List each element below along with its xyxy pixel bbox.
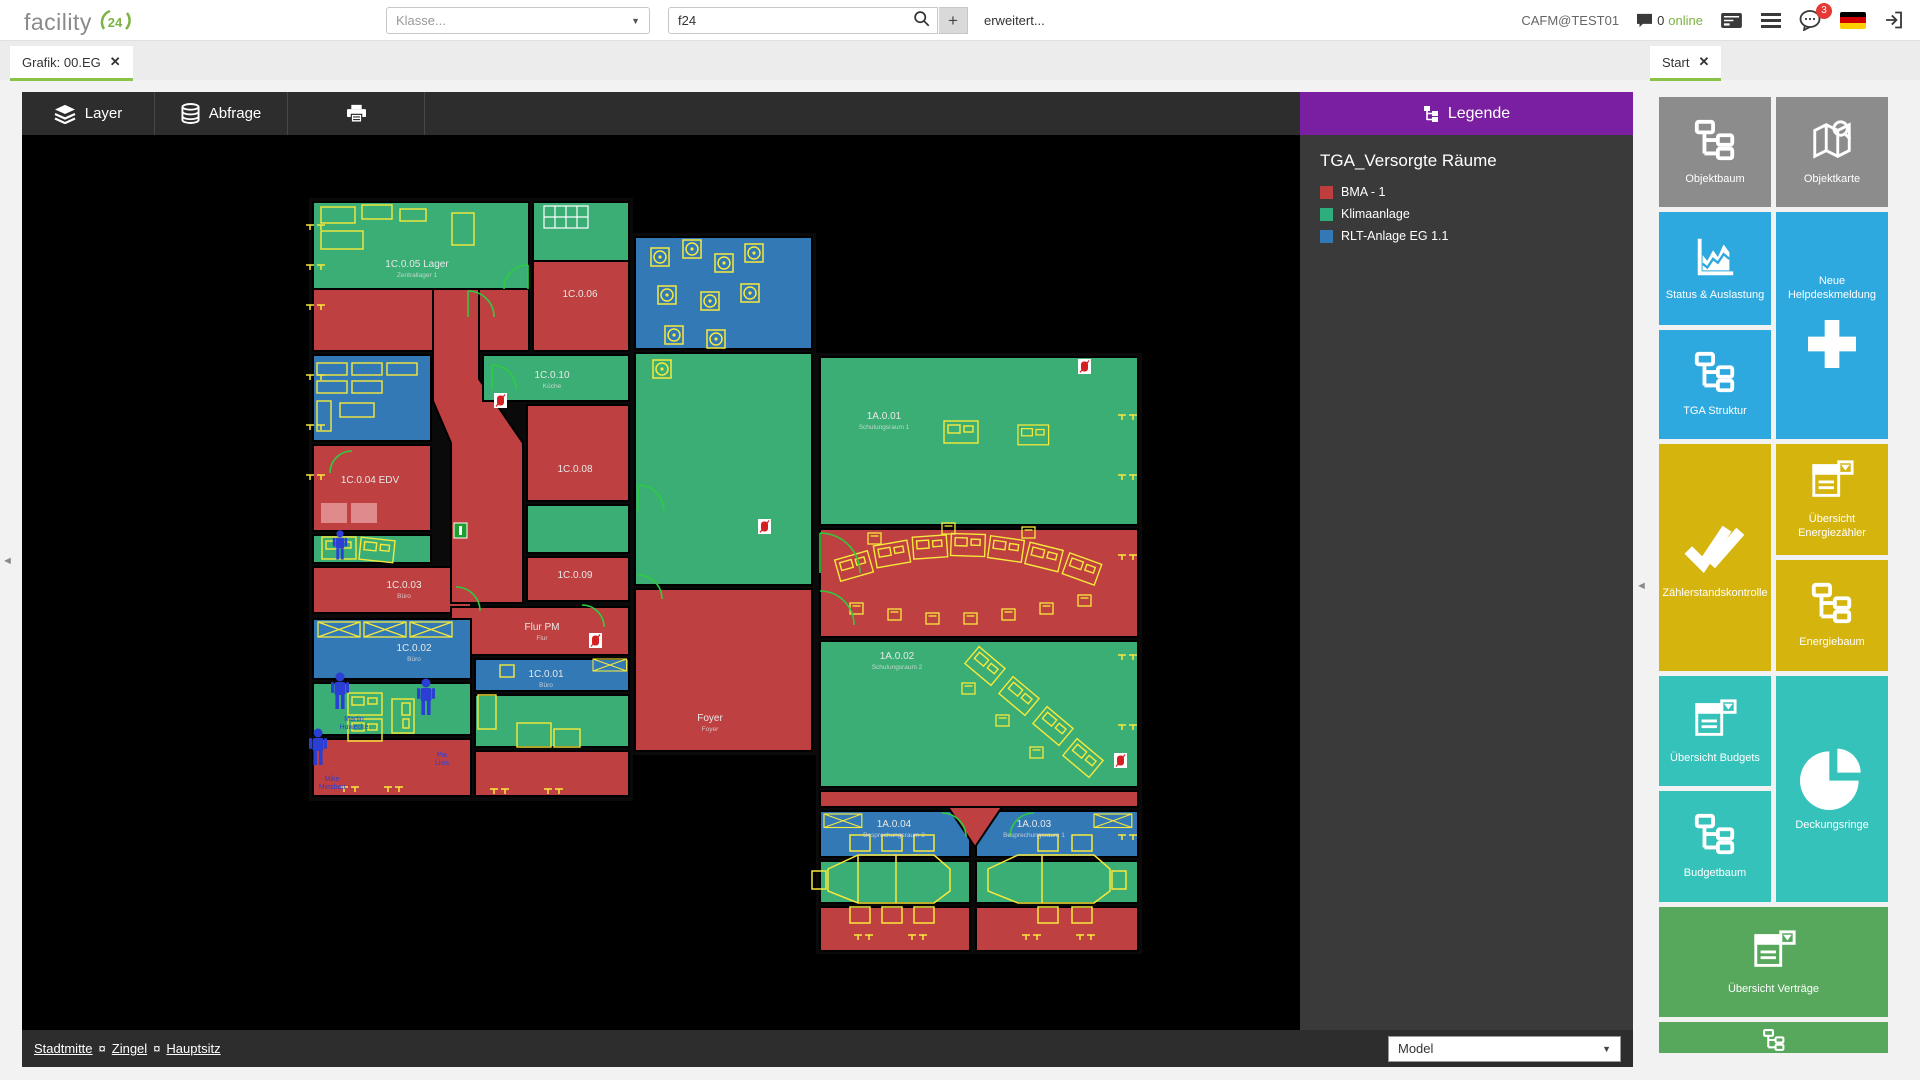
user-area: CAFM@TEST01 0 online 3	[1521, 0, 1904, 40]
tile-uebersicht-budgets[interactable]: Übersicht Budgets	[1659, 676, 1771, 786]
tile-status-auslastung[interactable]: Status & Auslastung	[1659, 212, 1771, 325]
console-icon[interactable]	[1720, 12, 1743, 29]
legend-swatch	[1320, 230, 1333, 243]
tile-objektbaum[interactable]: Objektbaum	[1659, 97, 1771, 207]
svg-text:1C.0.06: 1C.0.06	[562, 289, 597, 300]
klasse-dropdown[interactable]: Klasse... ▼	[386, 7, 650, 34]
tree-icon	[1692, 812, 1738, 858]
language-flag-icon[interactable]	[1840, 12, 1866, 29]
chevron-down-icon: ▼	[1602, 1044, 1611, 1054]
print-button[interactable]	[288, 92, 425, 135]
tile-deckungsringe[interactable]: Deckungsringe	[1776, 676, 1888, 902]
svg-text:1C.0.04 EDV: 1C.0.04 EDV	[341, 475, 400, 486]
svg-text:1A.0.02: 1A.0.02	[880, 651, 915, 662]
legend-body: TGA_Versorgte Räume BMA - 1 Klimaanlage …	[1300, 135, 1633, 1030]
breadcrumb-link-stadtmitte[interactable]: Stadtmitte	[34, 1041, 93, 1056]
tile-uebersicht-vertraege[interactable]: Übersicht Verträge	[1659, 907, 1888, 1017]
floorplan-canvas[interactable]: 1C.0.05 Lager Zentrallager 1 1C.0.06 1C.…	[22, 135, 1300, 1030]
svg-text:1C.0.05 Lager: 1C.0.05 Lager	[385, 259, 449, 270]
svg-text:Huwecke: Huwecke	[340, 724, 369, 731]
left-panel-handle[interactable]: ◄	[2, 555, 13, 567]
svg-text:Schulungsraum 1: Schulungsraum 1	[859, 424, 910, 431]
svg-text:1A.0.03: 1A.0.03	[1017, 819, 1052, 830]
tile-energiebaum[interactable]: Energiebaum	[1776, 560, 1888, 671]
svg-text:Büro: Büro	[397, 593, 411, 600]
tile-partial[interactable]	[1659, 1022, 1888, 1053]
legend-swatch	[1320, 186, 1333, 199]
svg-text:Flur PM: Flur PM	[525, 622, 560, 633]
legend-item[interactable]: BMA - 1	[1320, 185, 1613, 199]
tile-zaehlerstandskontrolle[interactable]: Zählerstandskontrolle	[1659, 444, 1771, 671]
breadcrumb: Stadtmitte ¤ Zingel ¤ Hauptsitz	[34, 1041, 221, 1056]
tile-tga-struktur[interactable]: TGA Struktur	[1659, 330, 1771, 439]
svg-text:1A.0.01: 1A.0.01	[867, 411, 902, 422]
svg-text:Foyer: Foyer	[697, 713, 723, 724]
tab-start[interactable]: Start ✕	[1650, 46, 1721, 81]
tab-strip: Grafik: 00.EG ✕ Start ✕	[0, 40, 1920, 80]
chat-icon	[1636, 13, 1653, 28]
svg-text:1C.0.03: 1C.0.03	[386, 580, 421, 591]
pie-icon	[1800, 746, 1864, 810]
svg-text:Flur: Flur	[536, 635, 548, 642]
search-icon[interactable]	[913, 10, 930, 32]
exit-sign-icon	[454, 523, 467, 538]
layer-button[interactable]: Layer	[22, 92, 155, 135]
database-icon	[181, 103, 200, 124]
klasse-placeholder: Klasse...	[396, 13, 446, 28]
legend-item[interactable]: RLT-Anlage EG 1.1	[1320, 229, 1613, 243]
svg-text:1C.0.10: 1C.0.10	[534, 370, 569, 381]
tree-icon	[1809, 581, 1855, 627]
map-icon	[1809, 118, 1855, 164]
search-box	[668, 7, 938, 34]
legend-item[interactable]: Klimaanlage	[1320, 207, 1613, 221]
svg-text:Besprechungsraum 2: Besprechungsraum 2	[863, 832, 925, 839]
app-header: facility 24 Klasse... ▼ + erweitert... C…	[0, 0, 1920, 40]
advanced-search-link[interactable]: erweitert...	[984, 13, 1045, 28]
layers-icon	[54, 104, 76, 124]
logout-icon[interactable]	[1883, 10, 1904, 30]
right-panel-handle[interactable]: ◄	[1636, 580, 1647, 592]
legend-swatch	[1320, 208, 1333, 221]
svg-text:Küche: Küche	[543, 383, 562, 390]
svg-text:1A.0.04: 1A.0.04	[877, 819, 912, 830]
current-user: CAFM@TEST01	[1521, 13, 1619, 28]
svg-text:1C.0.01: 1C.0.01	[528, 669, 563, 680]
tile-objektkarte[interactable]: Objektkarte	[1776, 97, 1888, 207]
svg-text:Martin: Martin	[344, 716, 364, 723]
messages-icon[interactable]: 3	[1799, 10, 1823, 31]
menu-icon[interactable]	[1760, 12, 1782, 29]
legend-subtitle: TGA_Versorgte Räume	[1320, 151, 1613, 171]
app-logo[interactable]: facility 24	[24, 4, 132, 41]
online-indicator[interactable]: 0 online	[1636, 13, 1703, 28]
plus-icon	[1800, 312, 1864, 376]
close-icon[interactable]: ✕	[110, 54, 121, 70]
svg-text:24: 24	[108, 15, 123, 30]
chevron-down-icon: ▼	[631, 16, 640, 26]
tree-icon	[1692, 118, 1738, 164]
check-icon	[1683, 514, 1747, 578]
report-icon	[1751, 928, 1797, 974]
abfrage-button[interactable]: Abfrage	[155, 92, 288, 135]
svg-text:Büro: Büro	[407, 656, 421, 663]
model-dropdown[interactable]: Model ▼	[1388, 1036, 1621, 1062]
svg-text:Miesbau: Miesbau	[319, 784, 346, 791]
sidebar-tiles: Objektbaum Objektkarte Status & Auslastu…	[1659, 97, 1888, 1053]
breadcrumb-separator: ¤	[99, 1041, 106, 1056]
printer-icon	[346, 104, 367, 123]
search-input[interactable]	[669, 13, 913, 28]
svg-text:Foyer: Foyer	[702, 726, 719, 733]
svg-text:1C.0.02: 1C.0.02	[396, 643, 431, 654]
svg-text:Mike: Mike	[325, 776, 340, 783]
svg-text:Schulungsraum 2: Schulungsraum 2	[872, 664, 923, 671]
svg-text:Büro: Büro	[539, 682, 553, 689]
viewer-toolbar: Layer Abfrage	[22, 92, 1300, 135]
notification-badge: 3	[1816, 3, 1832, 19]
tab-grafik[interactable]: Grafik: 00.EG ✕	[10, 46, 133, 81]
svg-text:Pia: Pia	[437, 752, 447, 759]
breadcrumb-separator: ¤	[153, 1041, 160, 1056]
legend-panel: Legende TGA_Versorgte Räume BMA - 1 Klim…	[1300, 92, 1633, 1030]
report-icon	[1692, 697, 1738, 743]
svg-text:Lixis: Lixis	[435, 760, 450, 767]
status-bar: Stadtmitte ¤ Zingel ¤ Hauptsitz Model ▼	[22, 1030, 1633, 1067]
svg-text:1C.0.09: 1C.0.09	[557, 570, 592, 581]
logo-badge: 24	[98, 7, 132, 44]
breadcrumb-link-hauptsitz[interactable]: Hauptsitz	[166, 1041, 220, 1056]
svg-text:Besprechungsraum 1: Besprechungsraum 1	[1003, 832, 1065, 839]
legend-icon	[1423, 105, 1439, 123]
tile-neue-helpdeskmeldung[interactable]: Neue Helpdeskmeldung	[1776, 212, 1888, 439]
tile-uebersicht-energiezaehler[interactable]: Übersicht Energiezähler	[1776, 444, 1888, 555]
add-search-button[interactable]: +	[939, 7, 968, 34]
close-icon[interactable]: ✕	[1698, 54, 1709, 70]
svg-text:Zentrallager 1: Zentrallager 1	[397, 272, 437, 279]
tree-icon	[1751, 1028, 1797, 1053]
breadcrumb-link-zingel[interactable]: Zingel	[112, 1041, 147, 1056]
svg-text:1C.0.08: 1C.0.08	[557, 464, 592, 475]
tree-icon	[1692, 350, 1738, 396]
legend-header[interactable]: Legende	[1300, 92, 1633, 135]
tile-budgetbaum[interactable]: Budgetbaum	[1659, 791, 1771, 902]
logo-text: facility	[24, 9, 92, 36]
chart-icon	[1692, 234, 1738, 280]
legend-title: Legende	[1448, 105, 1510, 123]
report-icon	[1809, 458, 1855, 504]
